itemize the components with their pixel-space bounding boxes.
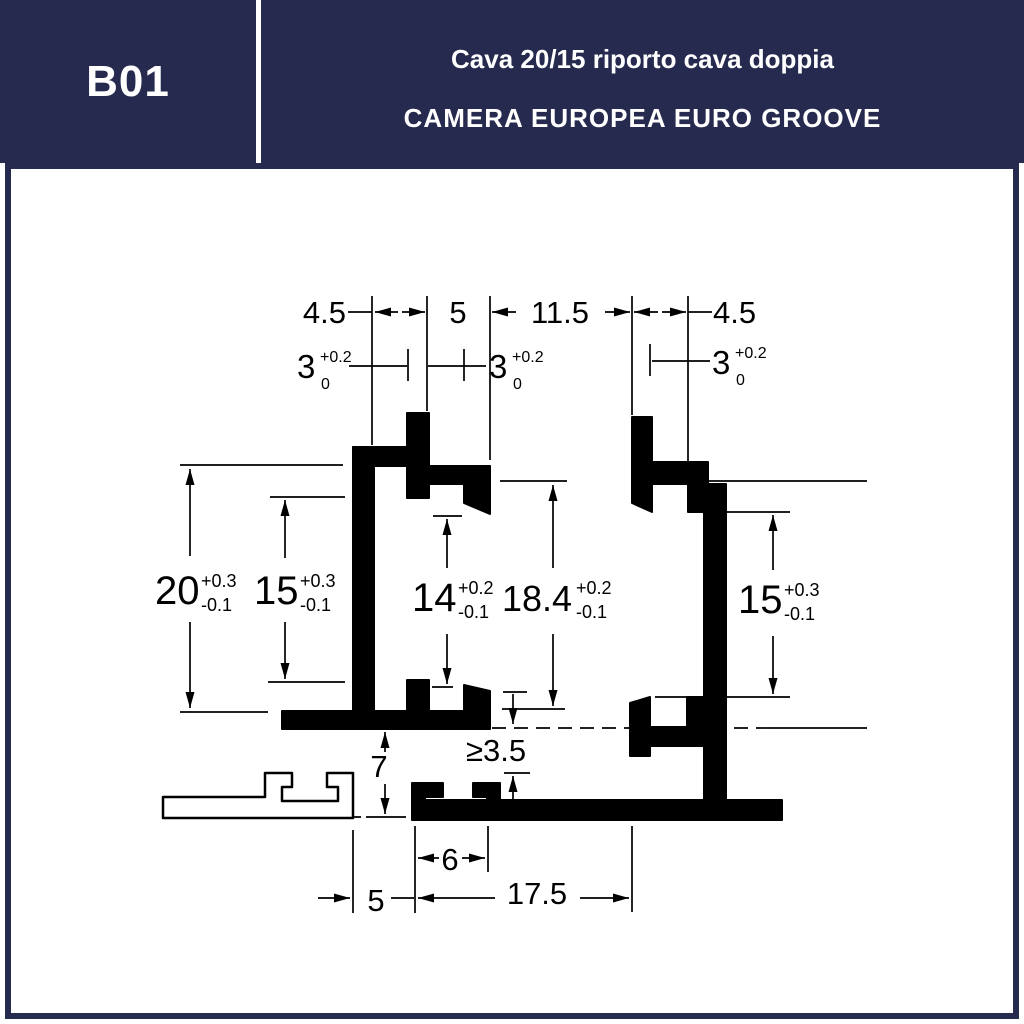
dim-6: 6 — [441, 842, 458, 877]
dim-7: 7 — [370, 749, 387, 784]
bead-profile-outline — [163, 773, 353, 818]
dim-18_4-plus: +0.2 — [576, 578, 612, 598]
dim-slot3-mid: 3 — [489, 348, 507, 385]
dim-slot3-right-plus: +0.2 — [735, 345, 767, 362]
dim-slot3-mid-plus: +0.2 — [512, 349, 544, 366]
title-italian: Cava 20/15 riporto cava doppia — [261, 44, 1024, 75]
dim-top-11_5: 11.5 — [531, 295, 589, 330]
dim-18_4-minus: -0.1 — [576, 602, 607, 622]
dim-min-3_5: ≥3.5 — [466, 733, 526, 768]
dim-15-left-plus: +0.3 — [300, 571, 336, 591]
dim-slot3-right: 3 — [712, 344, 730, 381]
dim-14: 14 — [412, 576, 457, 620]
dim-15-right-plus: +0.3 — [784, 580, 820, 600]
dim-15-right-minus: -0.1 — [784, 604, 815, 624]
dim-slot3-left-plus: +0.2 — [320, 349, 352, 366]
dim-slot3-left-minus: 0 — [321, 376, 330, 393]
dim-14-minus: -0.1 — [458, 602, 489, 622]
dim-18_4: 18.4 — [502, 578, 572, 619]
dim-17_5: 17.5 — [507, 876, 567, 911]
dim-20-minus: -0.1 — [201, 595, 232, 615]
dim-top-4_5-left: 4.5 — [303, 295, 346, 330]
dim-20: 20 — [155, 569, 200, 613]
title-english: CAMERA EUROPEA EURO GROOVE — [261, 103, 1024, 134]
dim-top-5: 5 — [449, 295, 466, 330]
dim-14-plus: +0.2 — [458, 578, 494, 598]
header-titles: Cava 20/15 riporto cava doppia CAMERA EU… — [261, 0, 1024, 163]
dim-15-left-minus: -0.1 — [300, 595, 331, 615]
dim-slot3-right-minus: 0 — [736, 372, 745, 389]
dim-15-right: 15 — [738, 578, 783, 622]
dim-top-4_5-right: 4.5 — [713, 295, 756, 330]
profile-code-cell: B01 — [0, 0, 256, 163]
profile-code: B01 — [86, 57, 170, 107]
header-bar: B01 Cava 20/15 riporto cava doppia CAMER… — [0, 0, 1024, 163]
dim-20-plus: +0.3 — [201, 571, 237, 591]
dim-slot3-left: 3 — [297, 348, 315, 385]
dim-slot3-mid-minus: 0 — [513, 376, 522, 393]
dim-15-left: 15 — [254, 569, 299, 613]
dim-5: 5 — [367, 883, 384, 918]
